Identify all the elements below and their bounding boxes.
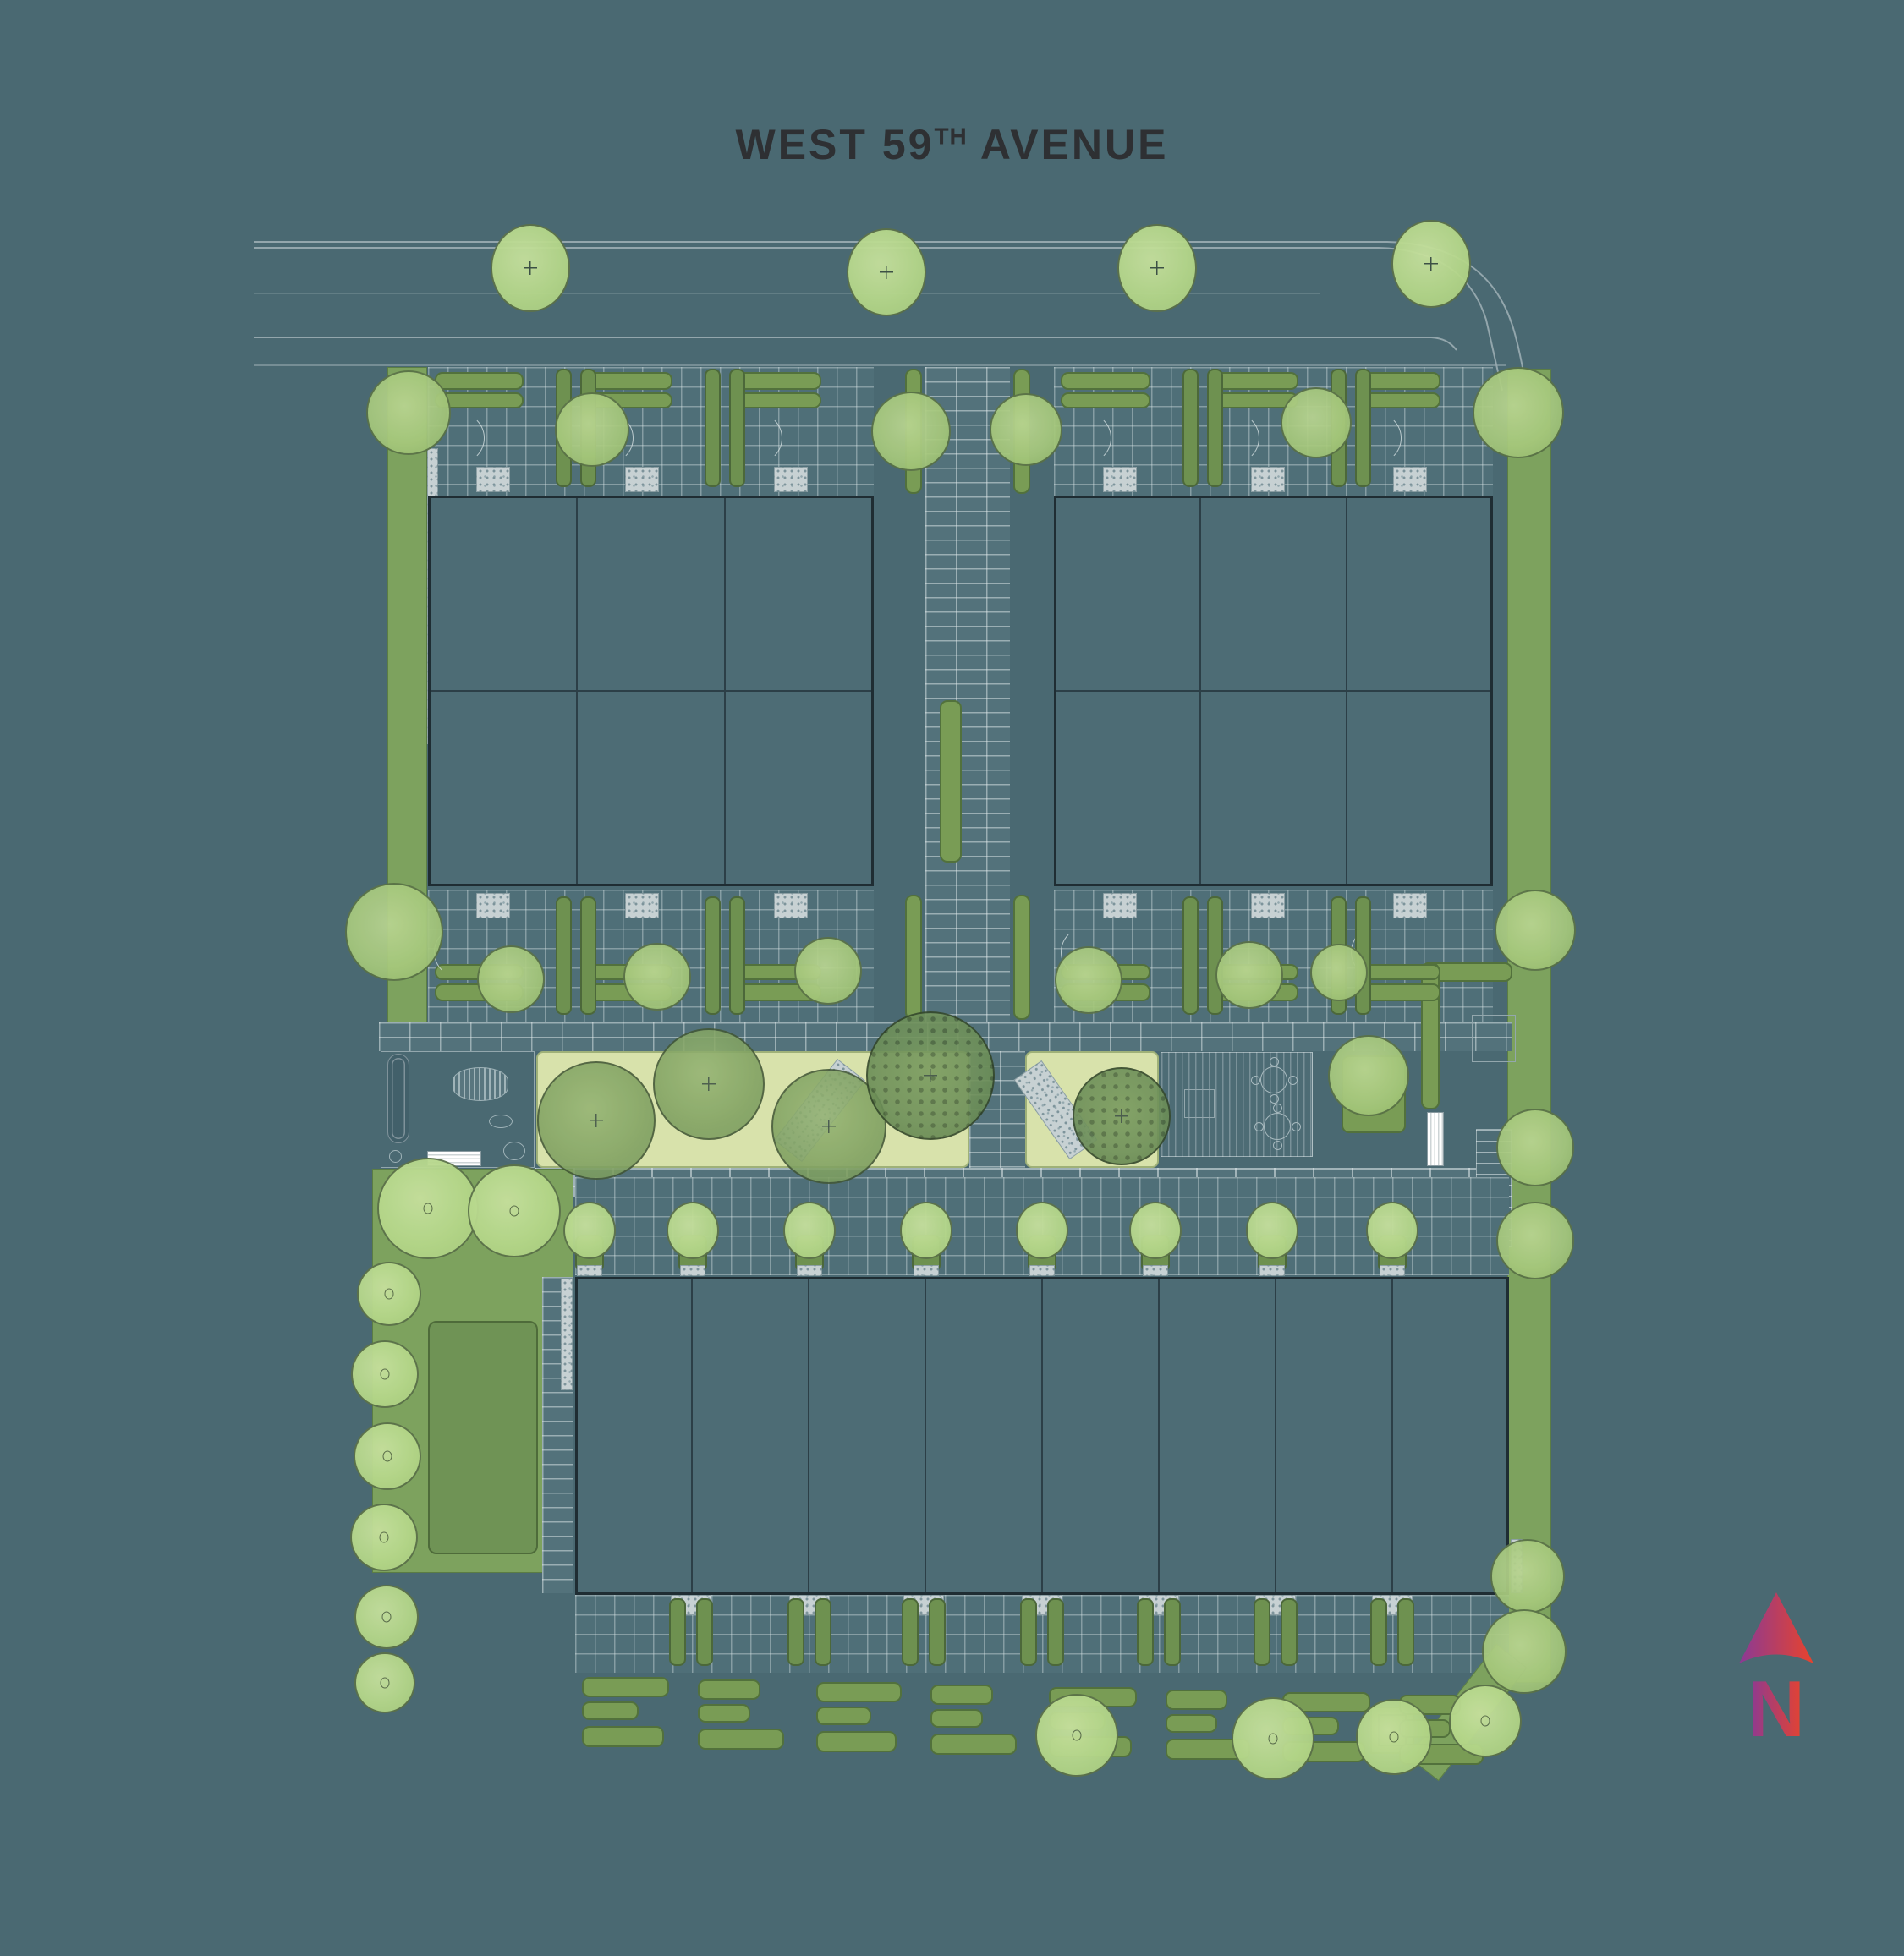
upper-right-block-row-divider [1056,690,1490,692]
backyard-hedge-row [816,1682,902,1702]
row-tree [1366,1202,1418,1259]
tree-trunk-mark [382,1612,392,1623]
row-tree [563,1202,616,1259]
street-title-rest: AVENUE [968,121,1169,168]
backyard-hedge-row [1166,1690,1227,1710]
canopy-tree [1055,946,1122,1014]
canopy-tree [1496,1109,1574,1186]
row-tree [1246,1202,1298,1259]
south-yard-hedge-vertical [580,896,596,1015]
canopy-tree [1496,1202,1574,1279]
backyard-hedge-row [698,1704,750,1723]
courtyard-tree [653,1028,765,1140]
canopy-tree [1328,1035,1409,1116]
backyard-hedge-vertical [815,1598,831,1666]
north-yard-hedge-vertical [1182,369,1199,487]
backyard-hedge-vertical [696,1598,713,1666]
perimeter-tree [354,1652,415,1713]
east-bench [1427,1112,1444,1166]
perimeter-tree [350,1504,418,1571]
backyard-hedge-vertical [1137,1598,1154,1666]
south-yard-gravel [774,893,808,918]
lower-block-unit-divider [1275,1279,1276,1592]
south-yard-hedge-vertical [729,896,745,1015]
deck-planter [1184,1089,1215,1118]
canopy-tree [1490,1539,1565,1614]
picnic-chair [1270,1057,1279,1066]
walkway-hedge-left-mid [905,895,922,1020]
south-yard-gravel [1251,893,1285,918]
backyard-hedge-vertical [1047,1598,1064,1666]
north-arrow: N [1724,1578,1834,1756]
perimeter-tree [354,1585,419,1649]
southwest-lawn-panel [428,1321,538,1554]
street-tree [1117,224,1197,312]
perimeter-tree [468,1164,561,1257]
courtyard-shade-tree [1073,1067,1171,1165]
tree-trunk-mark [380,1532,389,1543]
plaza-planter [387,1054,409,1143]
lower-block-unit-divider [1391,1279,1393,1592]
street-title: WEST 59TH AVENUE [0,120,1904,169]
perimeter-tree [1232,1697,1314,1780]
east-plaza-square [1472,1015,1516,1062]
north-yard-gravel [1393,467,1427,492]
tree-trunk-mark [1269,1734,1278,1745]
canopy-tree [345,883,443,981]
north-yard-gravel [1251,467,1285,492]
north-yard-gravel [476,467,510,492]
lower-block-unit-divider [1158,1279,1160,1592]
row-tree-gravel [577,1265,602,1276]
backyard-hedge-row [698,1729,784,1750]
north-yard-hedge-vertical [1355,369,1371,487]
walkway-planter [940,700,962,863]
north-label: N [1748,1664,1805,1753]
street-tree [491,224,570,312]
courtyard-shade-tree [866,1011,995,1140]
canopy-tree [366,370,451,455]
north-yard-gravel [1103,467,1137,492]
play-deck [1161,1052,1313,1157]
perimeter-tree [1035,1694,1118,1777]
canopy-tree [1495,890,1576,971]
picnic-table [1264,1113,1291,1140]
row-tree-gravel [914,1265,939,1276]
picnic-chair [1251,1076,1260,1085]
row-tree-gravel [1259,1265,1285,1276]
perimeter-tree [351,1340,419,1408]
picnic-chair [1254,1122,1264,1131]
courtyard-tree [537,1061,656,1180]
canopy-tree [871,392,951,471]
perimeter-tree [354,1422,421,1490]
backyard-hedge-vertical [1370,1598,1387,1666]
north-yard-gravel [774,467,808,492]
picnic-table [1260,1066,1287,1093]
north-yard-hedge-vertical [1207,369,1223,487]
backyard-hedge-vertical [1281,1598,1298,1666]
backyard-hedge-row [698,1679,760,1700]
canopy-tree [1482,1609,1567,1694]
street-title-main: WEST 59 [736,121,935,168]
tree-center-mark [924,1069,937,1082]
street-tree [847,228,926,316]
perimeter-tree [1356,1699,1432,1775]
south-yard-gravel [625,893,659,918]
canopy-tree [555,392,629,467]
backyard-hedge-row [582,1701,639,1720]
tree-trunk-mark [381,1678,390,1689]
tree-trunk-mark [385,1289,394,1300]
tree-center-mark [1115,1109,1128,1123]
north-door-swing-arc [1061,413,1111,463]
log-feature [453,1067,508,1101]
walkway-hedge-right-mid [1013,895,1030,1020]
site-plan-canvas: WEST 59TH AVENUE N [0,0,1904,1956]
tree-trunk-mark [1481,1716,1490,1727]
tree-trunk-mark [1073,1730,1082,1741]
backyard-hedge-vertical [929,1598,946,1666]
plan-layers [0,0,1904,1956]
backyard-hedge-vertical [902,1598,919,1666]
plaza-circle [389,1150,402,1163]
tree-trunk-mark [381,1369,390,1380]
south-yard-hedge-vertical [705,896,721,1015]
tree-center-mark [590,1114,603,1127]
backyard-hedge-vertical [669,1598,686,1666]
tree-center-mark [1424,257,1438,271]
tree-center-mark [880,266,893,279]
row-tree [1129,1202,1182,1259]
backyard-hedge-row [816,1707,871,1725]
lower-block-unit-divider [1041,1279,1043,1592]
backyard-hedge-vertical [1020,1598,1037,1666]
south-yard-hedge-vertical [1182,896,1199,1015]
tree-trunk-mark [510,1206,519,1217]
lower-block-unit-divider [808,1279,809,1592]
backyard-hedge-row [816,1731,897,1752]
row-tree [667,1202,719,1259]
canopy-tree [623,943,691,1011]
north-arrow-pointer [1739,1592,1813,1663]
south-yard-gravel [476,893,510,918]
backyard-hedge-vertical [1397,1598,1414,1666]
street-tree [1391,220,1471,308]
backyard-hedge-vertical [1254,1598,1270,1666]
perimeter-tree [357,1262,421,1326]
canopy-tree [1473,367,1564,458]
north-yard-hedge-vertical [729,369,745,487]
upper-left-block-row-divider [431,690,871,692]
tree-center-mark [1150,261,1164,275]
row-tree [783,1202,836,1259]
picnic-chair [1270,1094,1279,1104]
row-tree [1016,1202,1068,1259]
south-yard-hedge-vertical [556,896,572,1015]
north-yard-gravel [625,467,659,492]
southwest-path-gravel [561,1279,573,1390]
tree-trunk-mark [383,1451,392,1462]
north-yard-hedge-bar [435,372,524,390]
row-tree-gravel [797,1265,822,1276]
south-yard-gravel [1103,893,1137,918]
backyard-hedge-row [582,1726,664,1747]
street-title-ordinal: TH [934,123,967,149]
tree-trunk-mark [424,1203,433,1214]
backyard-hedge-vertical [1164,1598,1181,1666]
row-tree-gravel [1380,1265,1405,1276]
canopy-tree [990,393,1062,466]
backyard-hedge-row [930,1734,1017,1755]
canopy-tree [477,945,545,1013]
canopy-tree [794,937,862,1005]
picnic-chair [1273,1104,1282,1113]
row-tree [900,1202,952,1259]
play-icon-a [489,1115,513,1128]
canopy-tree [1215,941,1283,1009]
backyard-hedge-vertical [787,1598,804,1666]
backyard-hedge-row [582,1677,669,1697]
backyard-hedge-row [1166,1714,1217,1733]
backyard-hedge-row [930,1685,993,1705]
row-tree-gravel [680,1265,705,1276]
tree-center-mark [822,1120,836,1133]
picnic-chair [1288,1076,1298,1085]
row-tree-gravel [1029,1265,1055,1276]
canopy-tree [1310,944,1368,1001]
canopy-tree [1281,387,1352,458]
tree-center-mark [524,261,537,275]
row-tree-gravel [1143,1265,1168,1276]
perimeter-tree [1449,1685,1522,1757]
play-icon-b [503,1142,525,1160]
backyard-hedge-row [930,1709,983,1728]
north-yard-hedge-vertical [705,369,721,487]
tree-center-mark [702,1077,716,1091]
picnic-chair [1273,1141,1282,1150]
lower-block-unit-divider [691,1279,693,1592]
north-yard-hedge-bar [1061,372,1150,390]
central-walkway [925,367,1010,1051]
north-yard-hedge-bar [1061,392,1150,408]
tree-trunk-mark [1390,1732,1399,1743]
perimeter-tree [377,1158,479,1259]
lower-block-unit-divider [925,1279,926,1592]
south-yard-gravel [1393,893,1427,918]
picnic-chair [1292,1122,1301,1131]
